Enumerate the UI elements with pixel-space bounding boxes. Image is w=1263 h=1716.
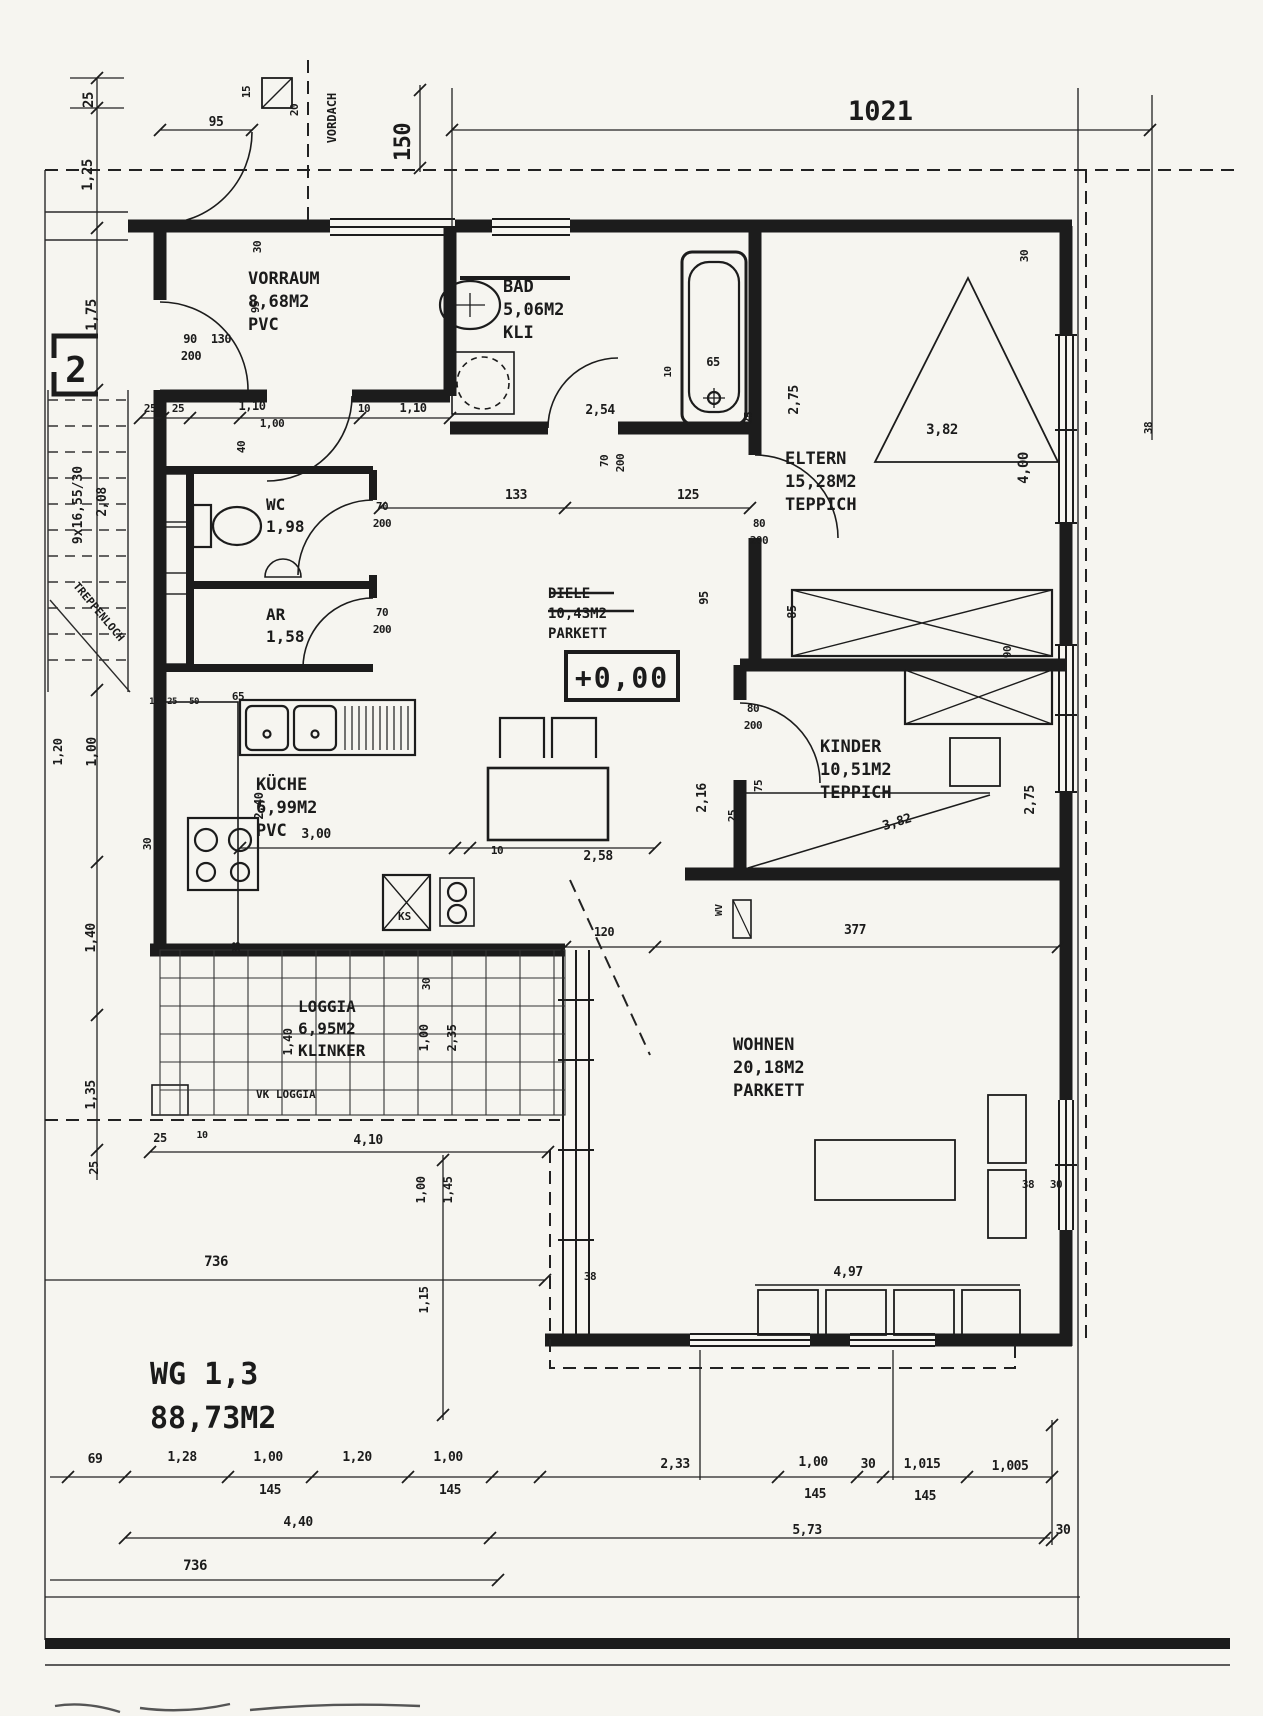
dimension-label: 70 bbox=[376, 606, 388, 619]
dimension-label: 3,82 bbox=[926, 422, 958, 438]
dimension-label: 25 bbox=[726, 810, 739, 822]
dimension-label: 65 bbox=[706, 355, 720, 369]
seat bbox=[962, 1290, 1020, 1335]
dimension-label: 1,00 bbox=[253, 1450, 283, 1465]
wc-basin bbox=[265, 559, 301, 577]
dimension-label: 125 bbox=[677, 488, 699, 503]
room-label: BAD5,06M2KLI bbox=[503, 277, 564, 343]
dimension-label: 1,10 bbox=[400, 401, 427, 415]
seat bbox=[758, 1290, 818, 1335]
dimension-label: 30 bbox=[1018, 250, 1031, 262]
kitchen-counter bbox=[165, 702, 238, 948]
kinder-door-arc bbox=[740, 703, 820, 783]
dimension-label: 30 bbox=[141, 838, 154, 850]
chair bbox=[552, 718, 596, 758]
dimension-label: 1,00 bbox=[798, 1455, 828, 1470]
dimension-label: 10 bbox=[663, 366, 674, 378]
dimension-label: 10 bbox=[196, 1130, 208, 1141]
dimension-label: 50 bbox=[189, 697, 199, 707]
dimension-label: 1,45 bbox=[441, 1176, 455, 1203]
dimension-label: 25 bbox=[167, 697, 177, 707]
dimension-label: 377 bbox=[844, 923, 866, 938]
vordach-label: VORDACH bbox=[325, 93, 339, 144]
floor-plan-sheet: 1021 +0,00 WG 1,3 88,73M2 2 VORDACH VK L… bbox=[0, 0, 1263, 1716]
dimension-label: 2,16 bbox=[695, 783, 710, 813]
kitchen-sink-unit bbox=[240, 700, 415, 755]
dimension-label: 145 bbox=[259, 1483, 281, 1498]
wardrobe-triangle bbox=[875, 278, 1058, 462]
dimension-label: 1,00 bbox=[417, 1024, 431, 1051]
dimension-label: 133 bbox=[505, 488, 527, 503]
dimension-label: 130 bbox=[211, 332, 231, 346]
dimension-label: 200 bbox=[614, 454, 627, 472]
dining-table bbox=[488, 768, 608, 840]
dimension-label: 1,40 bbox=[84, 923, 99, 953]
dimension-label: 38 bbox=[584, 1270, 596, 1283]
dimension-label: 736 bbox=[204, 1254, 228, 1270]
dimension-label: 1,015 bbox=[904, 1457, 941, 1472]
dimension-label: 12 bbox=[149, 697, 159, 707]
dimension-label: 25 bbox=[153, 1131, 167, 1145]
dimension-label: 40 bbox=[235, 441, 248, 453]
dimension-label: 85 bbox=[785, 605, 799, 619]
dimension-label: 25 bbox=[81, 92, 97, 108]
dimension-label: 145 bbox=[804, 1487, 826, 1502]
dimension-label: 145 bbox=[914, 1489, 936, 1504]
chair bbox=[500, 718, 544, 758]
dimension-label: 38 bbox=[1142, 422, 1155, 434]
entrance-door-arc bbox=[160, 132, 252, 224]
level-mark: +0,00 bbox=[575, 661, 669, 694]
dimension-label: 38 bbox=[230, 942, 243, 954]
dimension-label: 30 bbox=[420, 978, 433, 990]
dimension-labels: 251,251,7595152015030959013020025251,101… bbox=[51, 86, 1155, 1574]
dimension-label: 30 bbox=[861, 1457, 876, 1472]
dimension-label: 80 bbox=[747, 702, 759, 715]
dimension-label: 65 bbox=[232, 690, 244, 703]
dimension-label: 70 bbox=[376, 500, 388, 513]
dimension-label: 15 bbox=[240, 86, 253, 98]
dimension-label: 5,73 bbox=[792, 1523, 821, 1538]
stove bbox=[188, 818, 258, 890]
toilet-cistern bbox=[193, 505, 211, 547]
dimension-label: 4,97 bbox=[833, 1265, 862, 1280]
dimension-label: 10 bbox=[491, 844, 503, 857]
staircase-number: 2 bbox=[65, 350, 87, 391]
scan-artifacts bbox=[55, 1704, 420, 1712]
dimension-label: 1,10 bbox=[239, 399, 266, 413]
dimension-label: 1,40 bbox=[281, 1028, 295, 1055]
kinder-desk bbox=[745, 793, 990, 868]
dimension-label: 736 bbox=[183, 1558, 207, 1574]
dimension-label: 1,00 bbox=[433, 1450, 463, 1465]
wc-door-arc bbox=[298, 500, 373, 575]
room-label: WOHNEN20,18M2PARKETT bbox=[733, 1035, 805, 1101]
dimension-label: 200 bbox=[744, 719, 762, 732]
table bbox=[815, 1140, 955, 1200]
plan-number: 1021 bbox=[848, 96, 913, 127]
apartment-name: WG 1,3 bbox=[150, 1357, 258, 1392]
dimension-label: 20 bbox=[288, 104, 301, 116]
sheet-bottom-rule bbox=[45, 1638, 1230, 1649]
dimension-label: 4,00 bbox=[1016, 452, 1032, 484]
room-label: AR1,58 bbox=[266, 605, 305, 646]
treppenloch-label: TREPPENLOCH bbox=[70, 580, 127, 644]
room-label: DIELE10,43M2PARKETT bbox=[548, 586, 607, 642]
dimension-label: 2,35 bbox=[445, 1024, 459, 1051]
dimension-label: 25 bbox=[742, 412, 755, 424]
dimension-label: 2,33 bbox=[660, 1457, 689, 1472]
seat bbox=[894, 1290, 954, 1335]
floor-plan-drawing: 1021 +0,00 WG 1,3 88,73M2 2 VORDACH VK L… bbox=[0, 0, 1263, 1716]
dimension-label: 200 bbox=[373, 623, 391, 636]
dimension-label: 3,00 bbox=[301, 827, 331, 842]
dimension-label: 90 bbox=[183, 332, 197, 346]
dimension-label: 2,75 bbox=[1023, 785, 1038, 814]
room-label: ELTERN15,28M2TEPPICH bbox=[785, 449, 857, 515]
dimension-label: 70 bbox=[598, 455, 611, 467]
dimension-label: 120 bbox=[594, 925, 614, 939]
dimension-label: 1,28 bbox=[167, 1450, 197, 1465]
vk-loggia-label: VK LOGGIA bbox=[256, 1088, 316, 1101]
loggia-tile-grid bbox=[160, 950, 565, 1115]
dimension-label: 4,10 bbox=[353, 1133, 383, 1148]
room-label: LOGGIA6,95M2KLINKER bbox=[298, 997, 366, 1060]
dimension-label: 1,25 bbox=[80, 159, 96, 191]
kinder-table bbox=[950, 738, 1000, 786]
dimension-label: 25 bbox=[144, 402, 156, 415]
dimension-label: 1,00 bbox=[414, 1176, 428, 1203]
stair-spec-label: 9x16,55/30 bbox=[71, 466, 86, 544]
dimension-label: 1,35 bbox=[84, 1080, 99, 1109]
dimension-label: 2,08 bbox=[95, 487, 110, 517]
dimension-label: 25 bbox=[87, 1161, 101, 1175]
fixtures-and-furniture bbox=[152, 78, 1058, 1335]
toilet-bowl bbox=[213, 507, 261, 545]
dimension-label: 1,00 bbox=[85, 737, 100, 767]
dimension-label: 200 bbox=[750, 534, 768, 547]
dimension-label: 1,00 bbox=[260, 417, 285, 430]
dimension-label: 38 bbox=[1022, 1178, 1034, 1191]
ar-door-arc bbox=[303, 598, 373, 668]
seat bbox=[826, 1290, 886, 1335]
dimension-label: 30 bbox=[1050, 1178, 1062, 1191]
dimension-label: 2,75 bbox=[787, 385, 802, 414]
dimension-label: 150 bbox=[391, 123, 416, 161]
apartment-area: 88,73M2 bbox=[150, 1401, 276, 1436]
dimension-label: 200 bbox=[373, 517, 391, 530]
dimension-label: 30 bbox=[1056, 1523, 1071, 1538]
dimension-label: 10 bbox=[358, 402, 370, 415]
dimension-label: 95 bbox=[249, 301, 262, 313]
dimension-label: 90 bbox=[1001, 646, 1014, 658]
dimension-label: 95 bbox=[209, 115, 224, 130]
dimension-label: 69 bbox=[88, 1452, 103, 1467]
dimension-label: 95 bbox=[697, 591, 711, 605]
dimension-label: 1,20 bbox=[51, 738, 65, 765]
dimension-label: 2,54 bbox=[585, 403, 615, 418]
fridge-label: KS bbox=[398, 910, 411, 923]
room-label: WC1,98 bbox=[266, 495, 305, 536]
dimension-label: 145 bbox=[439, 1483, 461, 1498]
room-label: KINDER10,51M2TEPPICH bbox=[820, 737, 892, 803]
dimension-label: 4,40 bbox=[283, 1515, 313, 1530]
dimension-label: 1,005 bbox=[992, 1459, 1029, 1474]
washing-machine bbox=[452, 352, 514, 414]
vorraum-door-arc bbox=[160, 302, 248, 390]
dimension-label: 1,15 bbox=[417, 1286, 431, 1313]
dimension-label: 75 bbox=[752, 780, 765, 792]
dimension-label: 3,82 bbox=[881, 811, 913, 834]
dimension-label: 2,40 bbox=[252, 792, 266, 819]
dimension-label: 30 bbox=[251, 241, 264, 253]
dimension-label: 25 bbox=[172, 402, 184, 415]
dimension-label: 2,58 bbox=[583, 849, 613, 864]
dimension-label: 1,75 bbox=[84, 299, 100, 331]
radiator-label: WV bbox=[714, 904, 725, 916]
dimension-label: 1,20 bbox=[342, 1450, 372, 1465]
dimension-label: 200 bbox=[181, 349, 201, 363]
dimension-label: 80 bbox=[753, 517, 765, 530]
